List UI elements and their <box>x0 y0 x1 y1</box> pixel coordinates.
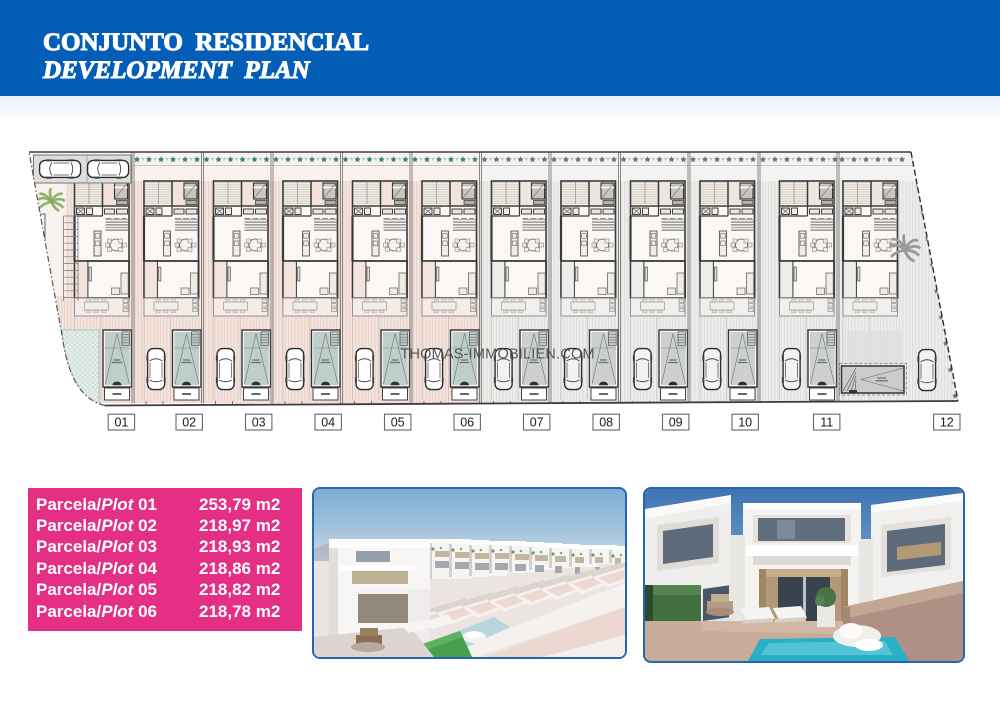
svg-text:03: 03 <box>252 416 266 430</box>
svg-text:02: 02 <box>182 416 196 430</box>
svg-text:10: 10 <box>738 416 752 430</box>
svg-text:07: 07 <box>530 416 544 430</box>
svg-text:04: 04 <box>321 416 335 430</box>
svg-text:11: 11 <box>820 416 833 430</box>
svg-text:05: 05 <box>391 416 405 430</box>
svg-text:06: 06 <box>460 416 474 430</box>
svg-text:09: 09 <box>669 416 683 430</box>
svg-text:01: 01 <box>114 416 128 430</box>
svg-text:08: 08 <box>599 416 613 430</box>
svg-text:12: 12 <box>940 416 954 430</box>
svg-text:THOMAS-IMMOBILIEN.COM: THOMAS-IMMOBILIEN.COM <box>400 347 594 363</box>
